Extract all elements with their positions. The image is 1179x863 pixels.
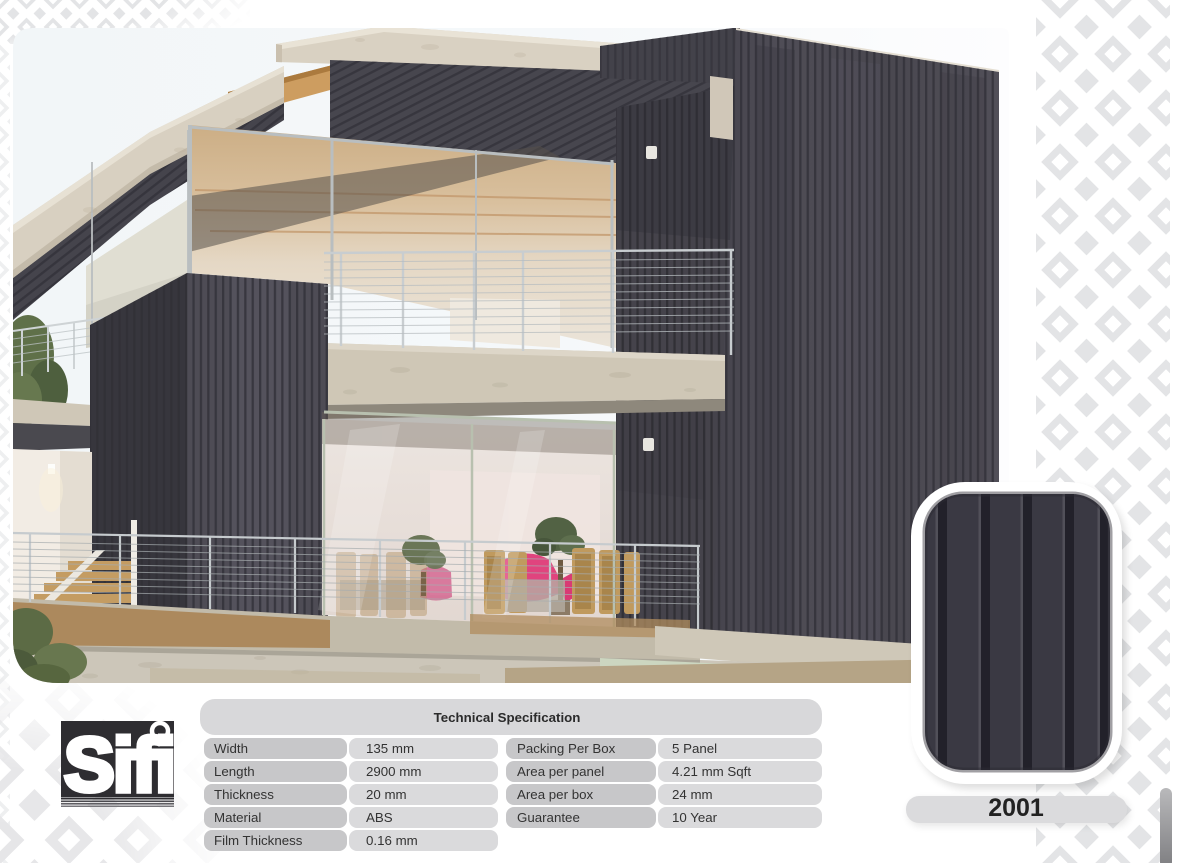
- svg-text:2900 mm: 2900 mm: [366, 764, 421, 779]
- svg-text:Guarantee: Guarantee: [517, 810, 580, 825]
- svg-text:Length: Length: [214, 764, 255, 779]
- svg-text:4.21 mm Sqft: 4.21 mm Sqft: [672, 764, 751, 779]
- svg-text:10 Year: 10 Year: [672, 810, 718, 825]
- svg-text:Sifi: Sifi: [64, 723, 174, 808]
- svg-text:Width: Width: [214, 741, 248, 756]
- svg-text:Material: Material: [214, 810, 261, 825]
- svg-text:Packing Per Box: Packing Per Box: [517, 741, 616, 756]
- svg-text:Area per box: Area per box: [517, 787, 593, 802]
- svg-text:Thickness: Thickness: [214, 787, 274, 802]
- svg-text:135 mm: 135 mm: [366, 741, 414, 756]
- svg-text:Technical Specification: Technical Specification: [434, 710, 581, 725]
- svg-text:ABS: ABS: [366, 810, 393, 825]
- svg-text:20 mm: 20 mm: [366, 787, 407, 802]
- svg-text:5 Panel: 5 Panel: [672, 741, 717, 756]
- svg-text:Area per panel: Area per panel: [517, 764, 604, 779]
- svg-text:Film Thickness: Film Thickness: [214, 833, 303, 848]
- svg-text:24 mm: 24 mm: [672, 787, 713, 802]
- svg-text:0.16 mm: 0.16 mm: [366, 833, 418, 848]
- svg-text:2001: 2001: [988, 794, 1044, 822]
